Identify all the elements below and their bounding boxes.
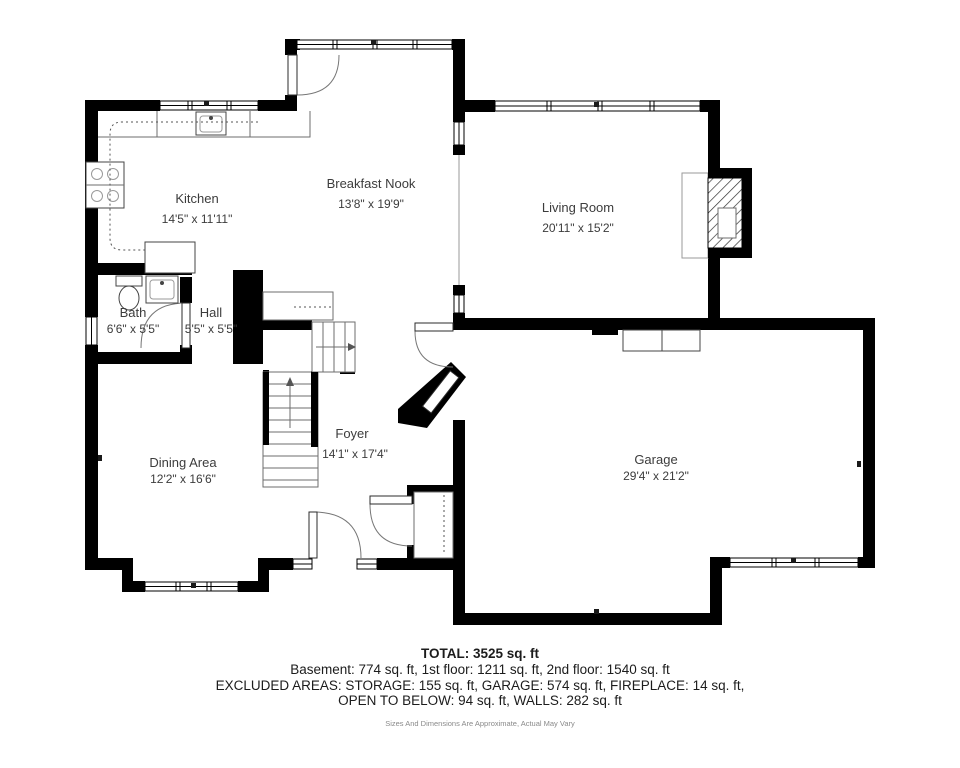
room-dims-living-room: 20'11" x 15'2" bbox=[542, 221, 614, 235]
foyer-rear-door bbox=[309, 512, 361, 558]
summary-block: TOTAL: 3525 sq. ft Basement: 774 sq. ft,… bbox=[0, 646, 960, 728]
nook-divider-window bbox=[454, 122, 464, 145]
room-dims-dining-area: 12'2" x 16'6" bbox=[150, 472, 216, 486]
foyer-window-right bbox=[357, 559, 377, 569]
fireplace bbox=[682, 168, 752, 258]
bath-window bbox=[86, 317, 97, 345]
hearth bbox=[682, 173, 708, 258]
summary-total: TOTAL: 3525 sq. ft bbox=[0, 646, 960, 662]
stairs-main-run bbox=[263, 372, 318, 487]
bath-sink bbox=[146, 276, 178, 303]
room-dims-bath: 6'6" x 5'5" bbox=[107, 322, 159, 336]
foyer-closet-door bbox=[370, 496, 412, 546]
room-label-foyer: Foyer bbox=[335, 426, 369, 441]
room-label-garage: Garage bbox=[634, 452, 677, 467]
breakfast-nook-door bbox=[288, 55, 339, 95]
interior-walls bbox=[85, 263, 618, 558]
upper-cabinets-dashed bbox=[110, 122, 258, 250]
foyer-window-left bbox=[293, 559, 312, 569]
summary-floors: Basement: 774 sq. ft, 1st floor: 1211 sq… bbox=[0, 662, 960, 678]
room-label-bath: Bath bbox=[120, 305, 147, 320]
kitchen-island bbox=[145, 242, 195, 273]
floor-plan-page: Kitchen 14'5" x 11'11" Breakfast Nook 13… bbox=[0, 0, 960, 768]
room-label-dining-area: Dining Area bbox=[149, 455, 217, 470]
summary-disclaimer: Sizes And Dimensions Are Approximate, Ac… bbox=[0, 719, 960, 728]
stove bbox=[86, 162, 124, 208]
room-dims-breakfast-nook: 13'8" x 19'9" bbox=[338, 197, 404, 211]
room-label-hall: Hall bbox=[200, 305, 223, 320]
summary-excluded-1: EXCLUDED AREAS: STORAGE: 155 sq. ft, GAR… bbox=[0, 678, 960, 694]
room-label-kitchen: Kitchen bbox=[175, 191, 218, 206]
room-dims-kitchen: 14'5" x 11'11" bbox=[162, 212, 233, 226]
stairs-upper-run bbox=[312, 322, 356, 372]
room-dims-garage: 29'4" x 21'2" bbox=[623, 469, 689, 483]
room-label-breakfast-nook: Breakfast Nook bbox=[327, 176, 416, 191]
room-label-living-room: Living Room bbox=[542, 200, 614, 215]
staircase bbox=[263, 322, 356, 487]
firebox bbox=[718, 208, 736, 238]
garage-entry-door bbox=[415, 323, 453, 367]
kitchen-sink bbox=[196, 112, 226, 135]
front-wall-window bbox=[454, 295, 464, 313]
pantry bbox=[263, 292, 333, 320]
summary-excluded-2: OPEN TO BELOW: 94 sq. ft, WALLS: 282 sq.… bbox=[0, 693, 960, 709]
foyer-closet bbox=[414, 492, 453, 558]
room-dims-foyer: 14'1" x 17'4" bbox=[322, 447, 388, 461]
garage-steps bbox=[623, 330, 700, 351]
room-dims-hall: 5'5" x 5'5" bbox=[185, 322, 237, 336]
